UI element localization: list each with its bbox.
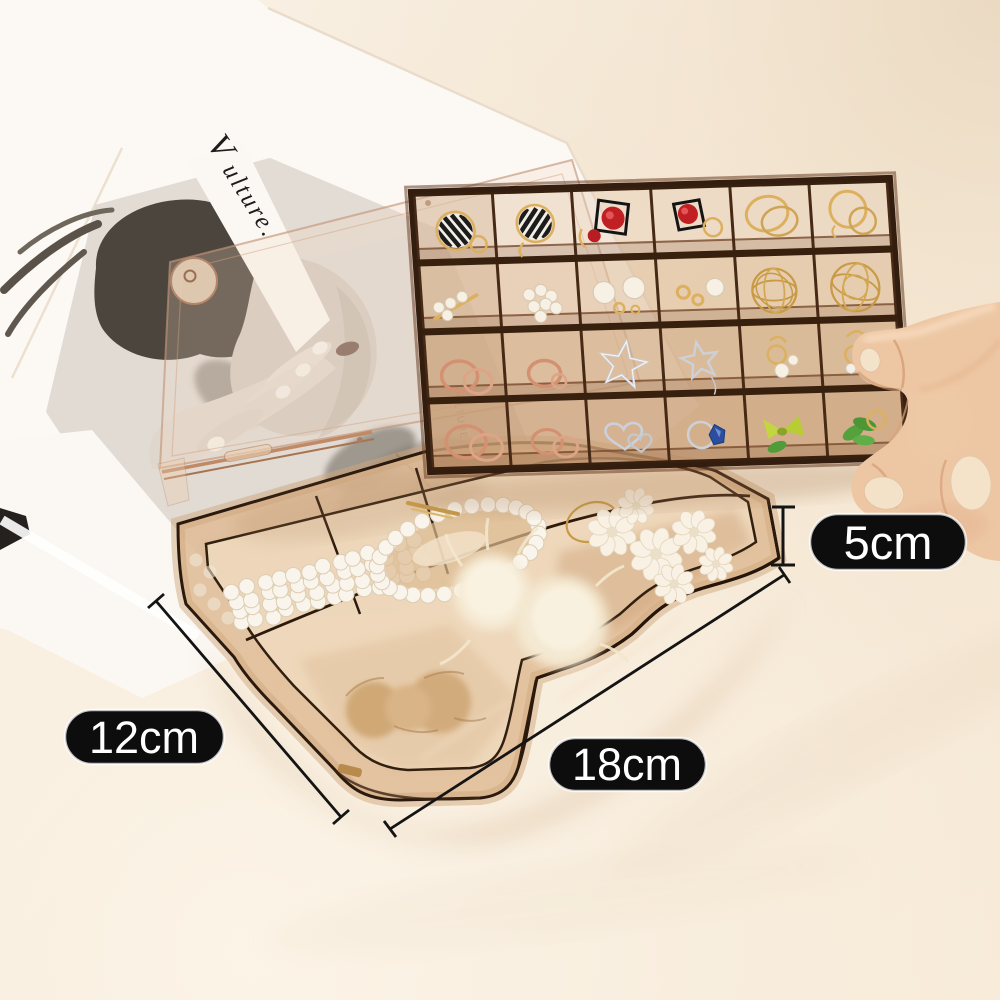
svg-text:12cm: 12cm — [89, 712, 199, 763]
svg-text:18cm: 18cm — [572, 739, 682, 790]
svg-text:5cm: 5cm — [844, 516, 933, 569]
